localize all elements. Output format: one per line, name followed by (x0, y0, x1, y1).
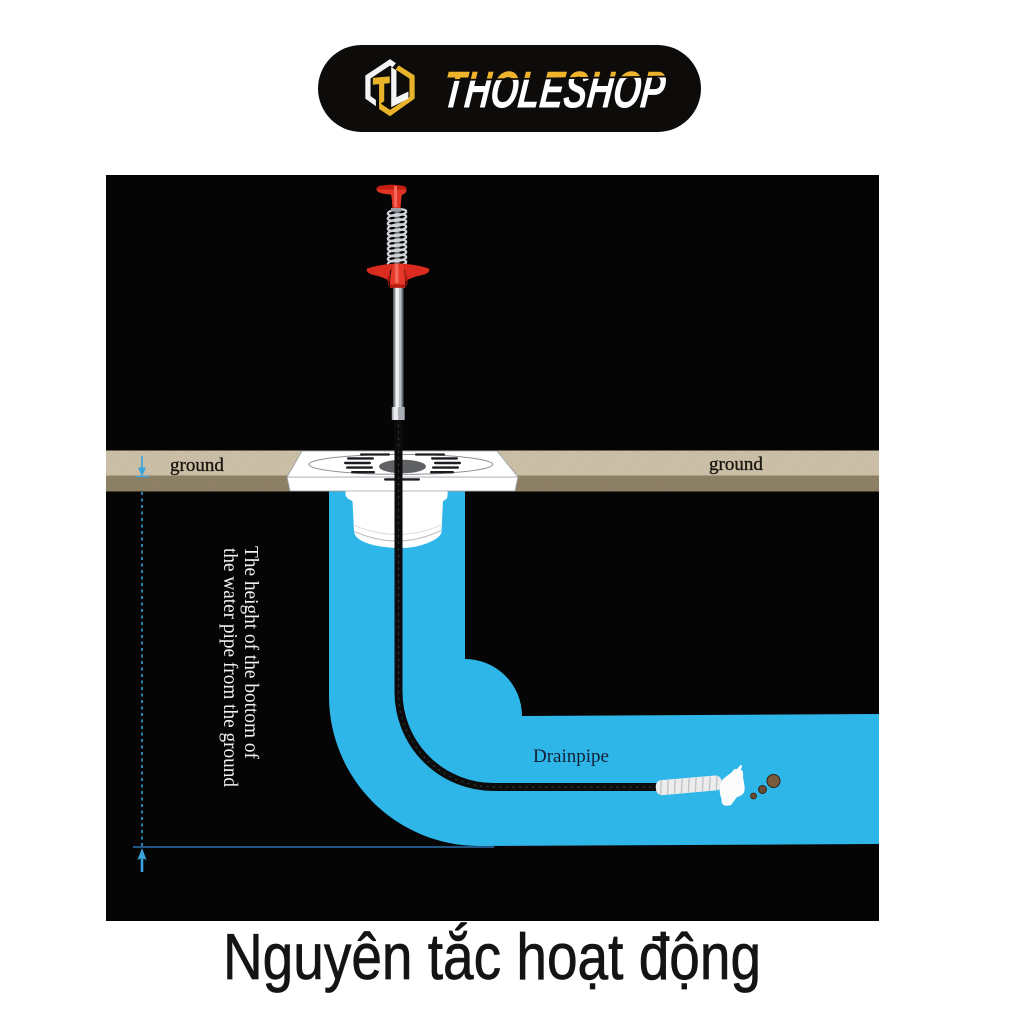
svg-text:the water pipe from the ground: the water pipe from the ground (219, 548, 241, 787)
svg-text:ground: ground (170, 455, 224, 476)
svg-text:The height of the bottom of: The height of the bottom of (240, 546, 262, 759)
svg-text:ground: ground (709, 454, 763, 475)
svg-text:Drainpipe: Drainpipe (533, 746, 609, 767)
